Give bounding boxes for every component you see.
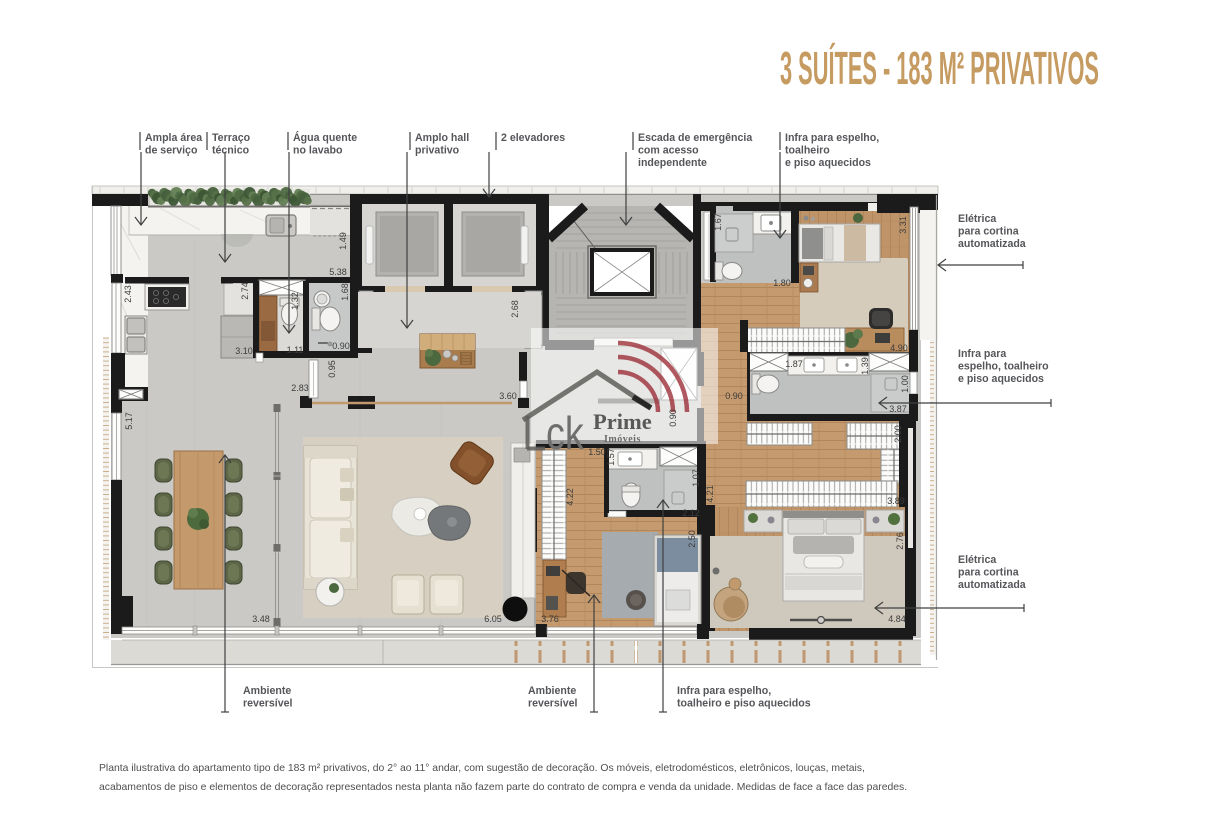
svg-text:1.11: 1.11 <box>287 345 304 355</box>
svg-text:reversível: reversível <box>528 698 578 710</box>
svg-text:0.95: 0.95 <box>327 360 337 378</box>
svg-text:1.07: 1.07 <box>691 469 701 487</box>
svg-text:2.50: 2.50 <box>687 530 697 548</box>
svg-text:técnico: técnico <box>212 145 250 157</box>
svg-text:5.38: 5.38 <box>329 267 347 277</box>
svg-text:Escada de emergência: Escada de emergência <box>638 132 752 144</box>
svg-text:ck: ck <box>546 407 585 458</box>
svg-text:2.12: 2.12 <box>682 508 700 518</box>
svg-text:2.83: 2.83 <box>291 383 309 393</box>
svg-text:4.21: 4.21 <box>705 485 715 503</box>
svg-text:2 elevadores: 2 elevadores <box>501 132 565 144</box>
svg-text:Infra para espelho,: Infra para espelho, <box>785 132 879 144</box>
svg-text:4.22: 4.22 <box>565 488 575 506</box>
svg-text:toalheiro e piso aquecidos: toalheiro e piso aquecidos <box>677 698 811 710</box>
svg-text:1.67: 1.67 <box>713 213 723 231</box>
svg-text:2.74: 2.74 <box>240 282 250 300</box>
svg-text:1.39: 1.39 <box>860 357 870 375</box>
svg-text:reversível: reversível <box>243 698 293 710</box>
svg-text:Amplo hall: Amplo hall <box>415 132 469 144</box>
svg-text:Elétrica: Elétrica <box>958 554 996 566</box>
svg-text:Água quente: Água quente <box>293 131 357 144</box>
svg-text:0.90: 0.90 <box>332 341 350 351</box>
svg-text:Ambiente: Ambiente <box>243 685 291 697</box>
svg-text:3.60: 3.60 <box>499 391 517 401</box>
svg-text:Infra para espelho,: Infra para espelho, <box>677 685 771 697</box>
svg-text:4.90: 4.90 <box>890 343 908 353</box>
svg-text:Infra para: Infra para <box>958 348 1006 360</box>
svg-text:toalheiro: toalheiro <box>785 145 830 157</box>
svg-text:3 SUÍTES - 183 M² PRIVATIVOS: 3 SUÍTES - 183 M² PRIVATIVOS <box>780 42 1099 94</box>
svg-text:1.32: 1.32 <box>290 292 300 310</box>
svg-text:1.68: 1.68 <box>340 283 350 301</box>
svg-text:Planta ilustrativa do apartame: Planta ilustrativa do apartamento tipo d… <box>99 763 865 774</box>
svg-text:Prime: Prime <box>593 409 652 434</box>
svg-text:Ambiente: Ambiente <box>528 685 576 697</box>
svg-text:e piso aquecidos: e piso aquecidos <box>785 157 871 169</box>
svg-text:3.48: 3.48 <box>252 614 270 624</box>
svg-text:independente: independente <box>638 157 707 169</box>
svg-text:3.31: 3.31 <box>898 216 908 234</box>
svg-text:2.76: 2.76 <box>895 532 905 550</box>
svg-text:Terraço: Terraço <box>212 132 251 144</box>
svg-text:5.17: 5.17 <box>124 412 134 430</box>
svg-text:Imóveis: Imóveis <box>604 434 641 445</box>
svg-text:4.84: 4.84 <box>888 614 906 624</box>
svg-text:1.49: 1.49 <box>338 232 348 250</box>
svg-text:para cortina: para cortina <box>958 567 1019 579</box>
svg-text:3.89: 3.89 <box>887 496 905 506</box>
svg-text:automatizada: automatizada <box>958 579 1026 591</box>
svg-text:0.90: 0.90 <box>668 409 678 427</box>
svg-text:automatizada: automatizada <box>958 238 1026 250</box>
svg-text:para cortina: para cortina <box>958 226 1019 238</box>
svg-text:no lavabo: no lavabo <box>293 145 343 157</box>
svg-text:de serviço: de serviço <box>145 145 198 157</box>
svg-text:1.57: 1.57 <box>606 448 616 466</box>
svg-text:e piso aquecidos: e piso aquecidos <box>958 373 1044 385</box>
svg-text:Ampla área: Ampla área <box>145 132 202 144</box>
svg-text:1.00: 1.00 <box>900 375 910 393</box>
svg-text:2.43: 2.43 <box>123 285 133 303</box>
svg-text:1.50: 1.50 <box>588 447 606 457</box>
svg-text:Elétrica: Elétrica <box>958 213 996 225</box>
svg-text:6.05: 6.05 <box>484 614 502 624</box>
svg-text:acabamentos de piso e elemento: acabamentos de piso e elementos de decor… <box>99 782 907 793</box>
svg-text:3.76: 3.76 <box>541 614 559 624</box>
svg-text:espelho, toalheiro: espelho, toalheiro <box>958 361 1049 373</box>
svg-text:3.87: 3.87 <box>889 404 907 414</box>
svg-text:3.10: 3.10 <box>235 346 253 356</box>
svg-text:privativo: privativo <box>415 145 460 157</box>
svg-text:com acesso: com acesso <box>638 145 699 157</box>
svg-text:1.87: 1.87 <box>785 359 803 369</box>
svg-text:1.80: 1.80 <box>773 278 791 288</box>
svg-text:0.90: 0.90 <box>725 391 743 401</box>
svg-text:2.68: 2.68 <box>510 300 520 318</box>
svg-text:2.00: 2.00 <box>893 425 903 443</box>
